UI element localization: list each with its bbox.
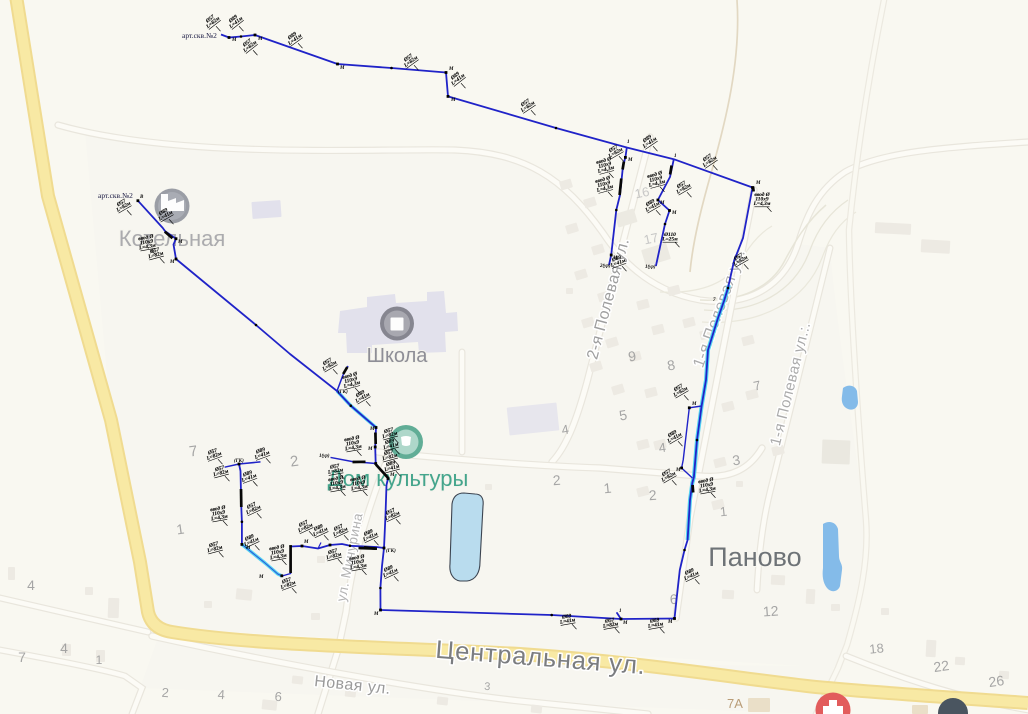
svg-text:4: 4 [217,687,225,702]
svg-text:М: М [245,546,251,551]
svg-text:М: М [671,211,677,216]
svg-text:М: М [622,621,628,626]
svg-text:арт.скв.№2: арт.скв.№2 [182,31,217,40]
svg-text:Паново: Паново [708,542,801,572]
svg-text:М: М [450,98,456,103]
svg-text:1: 1 [619,609,622,614]
svg-text:М: М [755,181,761,186]
svg-text:26: 26 [987,672,1005,690]
svg-text:М: М [659,201,665,206]
svg-text:М: М [367,447,373,452]
svg-text:(ГК): (ГК) [234,459,244,464]
svg-text:М: М [667,620,673,625]
svg-text:7А: 7А [727,696,743,711]
svg-text:12: 12 [762,602,779,619]
svg-text:М: М [675,468,681,473]
svg-text:М: М [169,260,175,265]
svg-text:М: М [339,66,345,71]
svg-text:1(ур): 1(ур) [645,265,656,270]
svg-text:Школа: Школа [367,345,429,367]
svg-text:1: 1 [719,504,728,520]
svg-text:6: 6 [274,689,282,704]
svg-text:(ГК): (ГК) [338,390,348,395]
svg-text:17: 17 [642,230,659,248]
svg-text:2: 2 [552,472,561,489]
svg-text:4: 4 [27,577,35,593]
svg-text:1(ур): 1(ур) [319,454,330,459]
svg-text:М: М [177,240,183,245]
svg-text:1: 1 [627,140,630,145]
svg-text:2(ур): 2(ур) [599,264,611,269]
svg-text:В: В [139,195,144,200]
svg-text:арт.скв.№2: арт.скв.№2 [98,191,133,200]
svg-text:4: 4 [60,640,68,656]
svg-text:М: М [257,37,263,42]
svg-text:М: М [231,38,237,43]
svg-text:М: М [258,575,264,580]
svg-text:L=25м: L=25м [661,237,678,243]
svg-text:7: 7 [18,649,26,665]
svg-text:1: 1 [96,653,103,667]
svg-text:18: 18 [869,640,885,656]
svg-text:М: М [627,158,633,163]
svg-text:М: М [612,256,618,261]
svg-text:2: 2 [648,487,657,504]
svg-text:22: 22 [932,657,950,675]
svg-text:L=4,3м: L=4,3м [753,201,771,207]
svg-text:1: 1 [674,154,677,159]
svg-text:3: 3 [484,681,491,693]
svg-text:М: М [369,427,375,432]
svg-text:(ГК): (ГК) [386,549,396,554]
svg-text:2: 2 [161,685,169,700]
svg-text:М: М [303,540,309,545]
svg-text:М: М [373,612,379,617]
svg-text:М: М [448,67,454,72]
svg-text:М: М [389,473,395,478]
svg-text:М: М [691,402,697,407]
